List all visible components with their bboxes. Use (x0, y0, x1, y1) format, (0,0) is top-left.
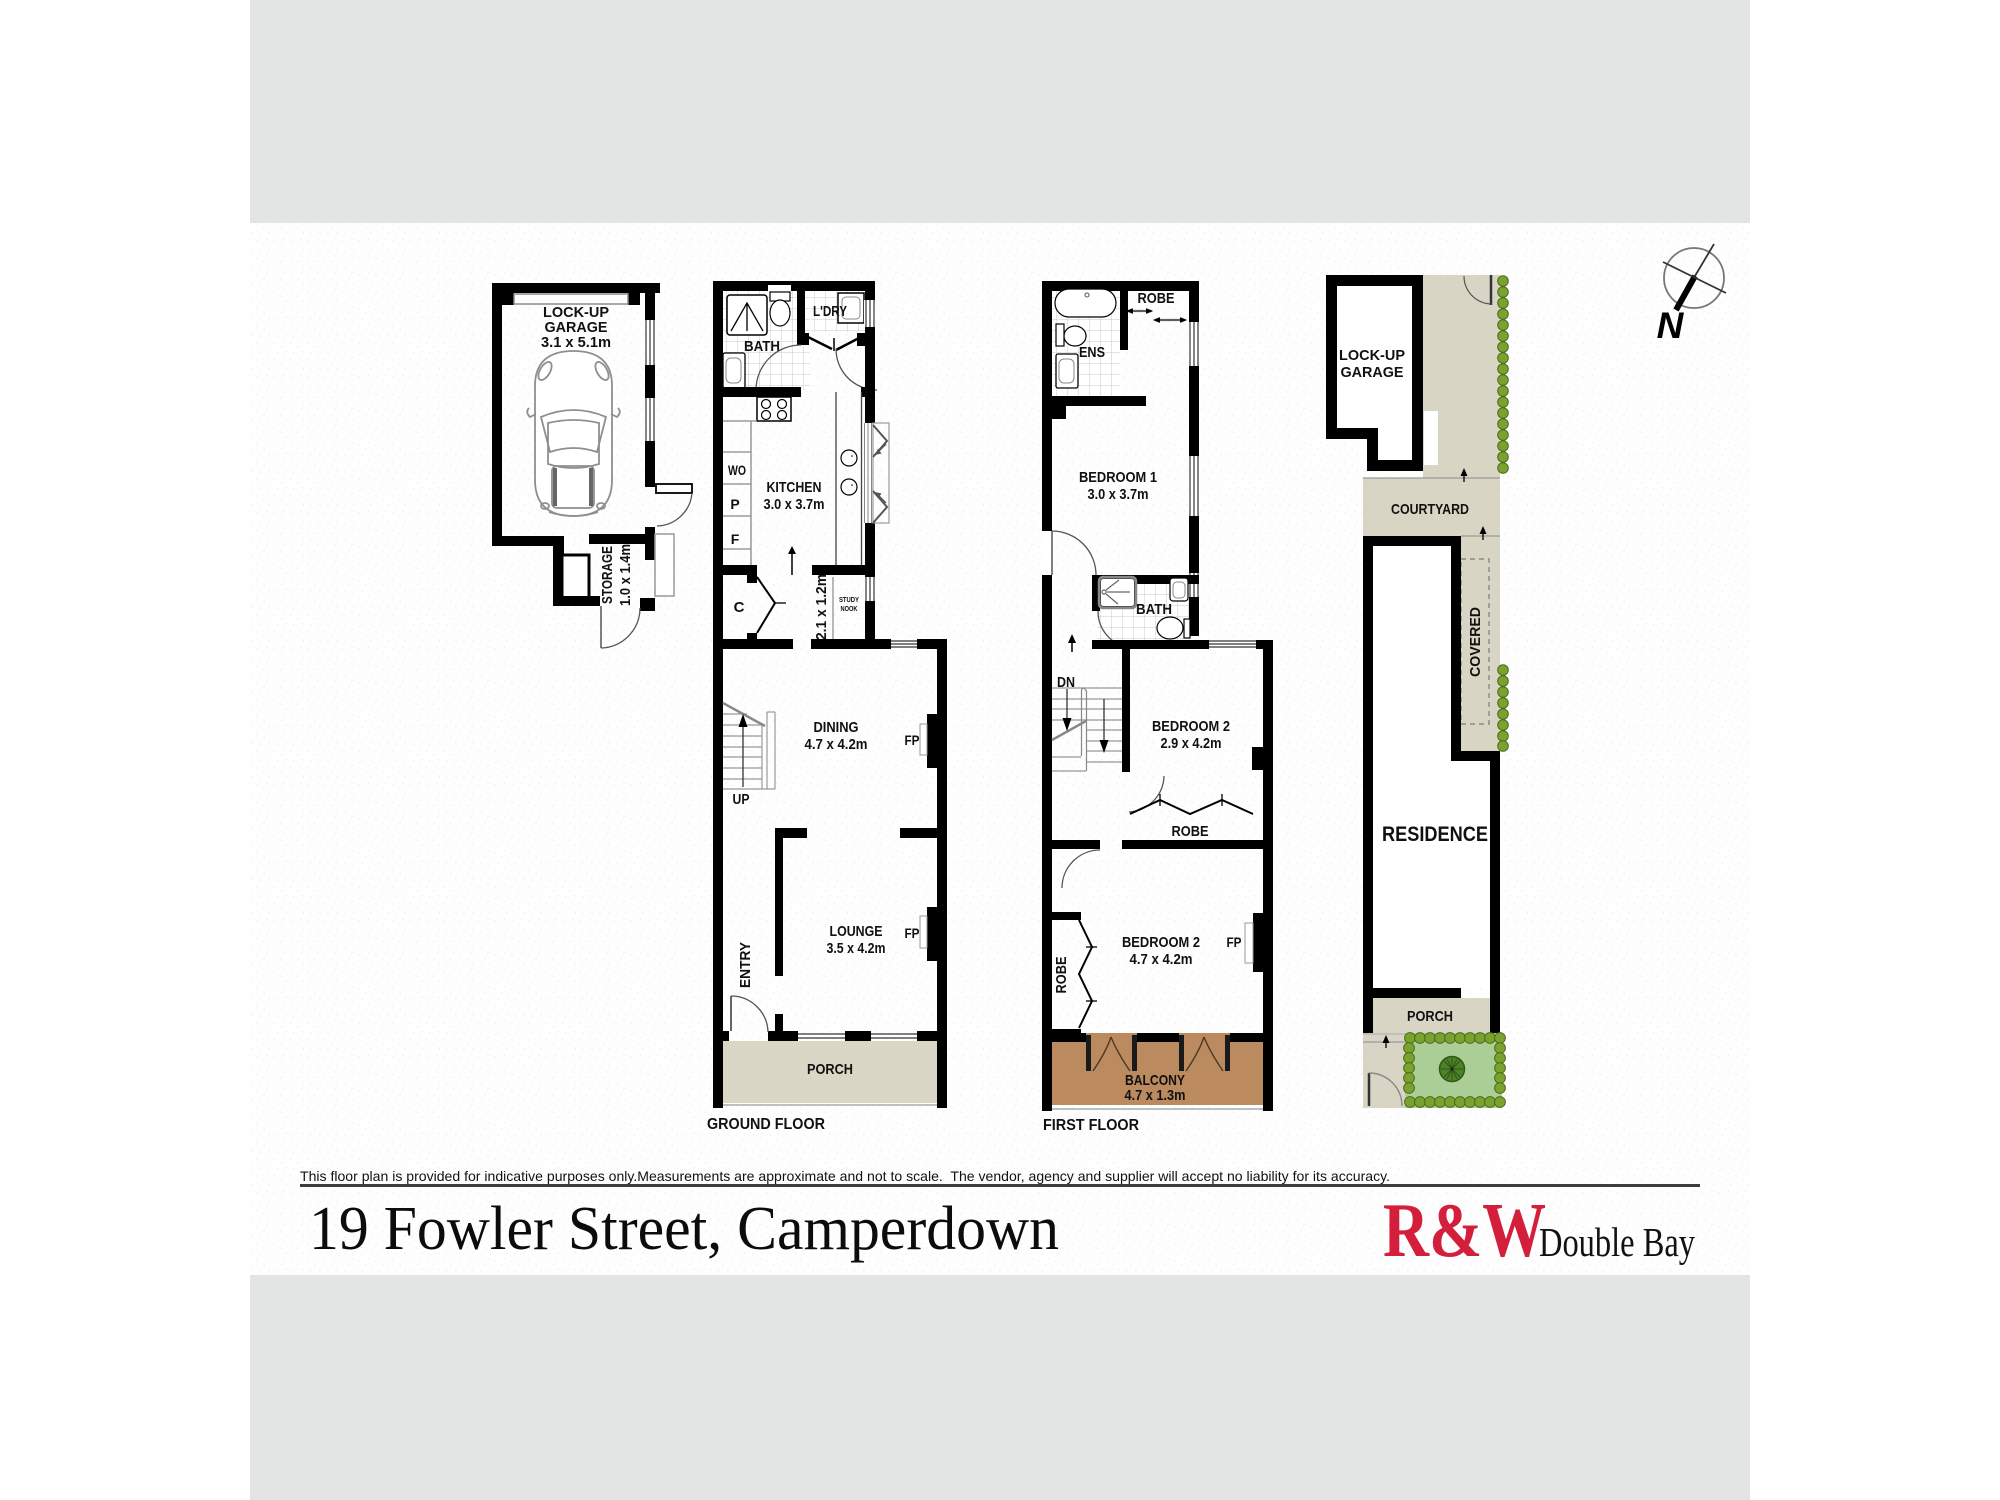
svg-text:ENS: ENS (1079, 344, 1105, 361)
svg-text:LOUNGE: LOUNGE (830, 923, 883, 940)
svg-text:N: N (1657, 305, 1685, 346)
svg-text:NOOK: NOOK (841, 604, 858, 613)
svg-text:COVERED: COVERED (1467, 607, 1484, 677)
svg-text:3.0 x 3.7m: 3.0 x 3.7m (764, 496, 825, 513)
svg-text:BEDROOM 2: BEDROOM 2 (1152, 718, 1230, 735)
svg-text:F: F (731, 531, 740, 547)
svg-text:FP: FP (1227, 934, 1242, 950)
svg-text:GROUND FLOOR: GROUND FLOOR (707, 1116, 825, 1133)
svg-text:2.1 x 1.2m: 2.1 x 1.2m (813, 574, 830, 640)
svg-text:BATH: BATH (1136, 601, 1172, 618)
svg-text:STORAGE: STORAGE (599, 546, 616, 604)
svg-text:L'DRY: L'DRY (813, 303, 847, 320)
svg-text:4.7 x 4.2m: 4.7 x 4.2m (1130, 951, 1193, 968)
svg-text:GARAGE: GARAGE (1341, 364, 1404, 381)
svg-text:3.1 x 5.1m: 3.1 x 5.1m (541, 334, 611, 351)
svg-text:UP: UP (733, 791, 750, 808)
svg-text:LOCK-UP: LOCK-UP (1339, 347, 1405, 364)
svg-text:P: P (730, 496, 739, 512)
svg-text:C: C (734, 599, 745, 616)
svg-text:WO: WO (728, 462, 746, 478)
svg-text:ENTRY: ENTRY (737, 942, 754, 988)
svg-text:BEDROOM 2: BEDROOM 2 (1122, 934, 1200, 951)
svg-text:PORCH: PORCH (807, 1061, 853, 1078)
svg-text:ROBE: ROBE (1138, 290, 1175, 307)
svg-text:KITCHEN: KITCHEN (767, 479, 822, 496)
svg-text:BEDROOM 1: BEDROOM 1 (1079, 469, 1157, 486)
svg-text:ROBE: ROBE (1053, 957, 1070, 994)
svg-text:3.5 x 4.2m: 3.5 x 4.2m (827, 940, 886, 957)
svg-text:19 Fowler Street, Camperdown: 19 Fowler Street, Camperdown (309, 1195, 1059, 1263)
svg-text:This floor plan is provided fo: This floor plan is provided for indicati… (300, 1168, 1390, 1184)
svg-text:RESIDENCE: RESIDENCE (1382, 823, 1488, 846)
svg-text:FP: FP (905, 925, 920, 941)
svg-text:ROBE: ROBE (1172, 823, 1209, 840)
svg-text:FP: FP (905, 732, 920, 748)
svg-text:3.0 x 3.7m: 3.0 x 3.7m (1088, 486, 1149, 503)
svg-text:Double Bay: Double Bay (1539, 1219, 1695, 1265)
svg-text:DINING: DINING (814, 719, 859, 736)
svg-text:PORCH: PORCH (1407, 1008, 1453, 1025)
svg-text:2.9 x 4.2m: 2.9 x 4.2m (1161, 735, 1222, 752)
svg-text:R&W: R&W (1383, 1187, 1546, 1273)
svg-text:4.7 x 4.2m: 4.7 x 4.2m (805, 736, 868, 753)
svg-text:COURTYARD: COURTYARD (1391, 501, 1469, 518)
svg-text:STUDY: STUDY (839, 595, 859, 604)
svg-text:BATH: BATH (744, 338, 780, 355)
svg-text:4.7 x 1.3m: 4.7 x 1.3m (1125, 1087, 1186, 1104)
svg-text:FIRST FLOOR: FIRST FLOOR (1043, 1117, 1139, 1134)
svg-text:1.0 x 1.4m: 1.0 x 1.4m (617, 544, 634, 606)
